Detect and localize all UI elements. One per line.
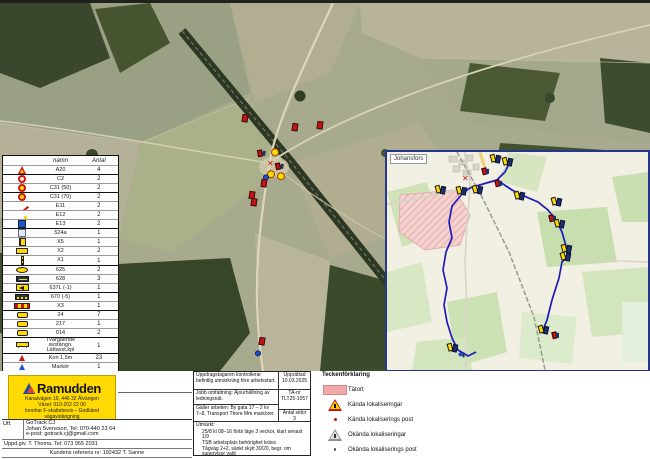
sign-name: Tvärgående avstängn. Lättavst.kpl [41,338,79,354]
sign-count: 7 [80,311,118,320]
legend-item-label: Tätort [348,387,364,393]
sign-count: 2 [80,184,118,193]
blue-sign-icon [18,220,26,228]
sign-count: 1 [80,284,118,293]
legend-row: 6252 [3,266,118,275]
legend-row: X51 [3,238,118,247]
zig-sign-icon [15,294,29,300]
title-block: Ramudden Kanalvägen 10, 446 32 Älvängen … [0,371,650,459]
legend-item-known-post: Kända lokaliserings post [322,412,487,427]
legend-row: A204 [3,166,118,175]
plan-notes-section: Utmärkt: 25/8 kl 08–16 förbi läge 3 veck… [194,422,310,455]
flag-pair-marker-icon [448,343,457,351]
sign-blue-marker-icon [255,350,261,356]
sign-count: 1 [80,229,118,238]
sign-count: 1 [80,338,118,354]
legend-row: X31 [3,302,118,311]
x1bar-sign-icon [21,256,24,265]
sign-red-marker-icon [258,337,265,346]
inset-markers [387,152,648,370]
legend-row: 2171 [3,320,118,329]
sign-red-pair-marker-icon [258,150,267,157]
x3-sign-icon [14,303,30,309]
sign-red-marker-icon [291,123,298,132]
ysmall-sign-icon [17,312,28,318]
cross-red-marker-icon [267,160,275,168]
plan-note: Tågväg 2+2, sänkt skylt 30/20, begr. om … [202,447,308,456]
legend-row: Kon 1,5m23 [3,354,118,363]
sign-name: E11 [41,202,79,211]
sign-name: C2 [41,175,79,184]
ramudden-wordmark: Ramudden [37,381,101,396]
plan-notes-label: Utmärkt: [196,422,215,428]
legend-row: C31 (50)2 [3,184,118,193]
ta-plan-page: namn Antal A204C22C31 (50)2C31 (70)2E112… [0,0,650,459]
flag-pair-marker-icon [539,325,548,333]
divider-line [118,392,192,393]
symbol-legend: Teckenförklaring Tätort Kända lokaliseri… [322,372,487,457]
legend-row: C22 [3,175,118,184]
legend-item-known-locations: Kända lokaliseringar [322,397,487,412]
ramudden-triangle-icon [23,383,35,394]
sign-name: A20 [41,166,79,175]
contractor-role-label: Utf. [2,420,24,439]
plan-note: TSB arbetsplats behörighet krävs [202,441,308,446]
trestle-sign-icon [16,342,29,347]
page-count-cell: Antal sidor 3 [278,410,310,422]
flag-pair-marker-icon [457,186,466,194]
sign-red-pair-marker-icon [276,163,285,170]
flag-pair-marker-icon [436,185,445,193]
sign-name: 217 [41,320,79,329]
flag-pair-marker-icon [561,252,570,260]
flag-pair-marker-icon [515,191,524,199]
legend-header-count: Antal [80,156,118,166]
legend-row: 637L (-1)1 [3,284,118,293]
legend-row: E112 [3,202,118,211]
flag-pair-marker-icon [473,185,482,193]
created-date-cell: Upprättad 10.03.2025 [278,372,310,390]
legend-row: 0142 [3,329,118,338]
inset-overview-map: Johansfors [385,150,650,372]
sign-count: 4 [80,166,118,175]
legend-row: Tvärgående avstängn. Lättavst.kpl1 [3,338,118,354]
sign-name: 625 [41,266,79,275]
legend-item-label: Kända lokaliseringar [348,402,402,408]
plan-info-row3: Gäller arbeten: By gata 17 – 2 kv 7–8, T… [194,405,278,422]
sign-count: 2 [80,193,118,202]
legend-item-unknown-locations: Okända lokaliseringar [322,427,487,442]
circ-sign-icon [18,175,26,183]
sign-count: 23 [80,354,118,363]
sign-count: 1 [80,320,118,329]
contractor-table: Utf. GoTrack CJ Johan Svensson, Tel: 070… [2,419,192,459]
cone-sign-icon [19,355,25,361]
legend-rows: A204C22C31 (50)2C31 (70)2E112E122E132524… [3,166,118,381]
plan-info-block: Uppdragstagaren kontrollerar befintlig u… [193,371,311,456]
pale-sign-icon [18,229,26,237]
legend-row: E122 [3,211,118,220]
sign-red-marker-icon [260,179,267,188]
sign-name: 524a [41,229,79,238]
x2-sign-icon [16,248,28,254]
sign-name: C31 (50) [41,184,79,193]
sign-yellow-marker-icon [271,148,279,156]
sign-name: 670 (-5) [41,293,79,302]
sign-count: 2 [80,211,118,220]
urban-area-swatch-icon [323,385,347,395]
sign-red-marker-icon [250,198,257,207]
legend-header-icon [3,156,41,166]
flag-pair-marker-icon [555,219,564,227]
legend-row: X11 [3,256,118,266]
ysmall-sign-icon [17,330,28,336]
legend-item-label: Okända lokaliseringar [348,432,406,438]
flag-pair-marker-icon [503,157,512,165]
ramudden-logo-box: Ramudden Kanalvägen 10, 446 32 Älvängen … [8,375,116,420]
ta-number-value: TLT25-1057 [281,397,308,403]
flag-red-marker-icon [552,332,560,339]
flag-pair-marker-icon [552,197,561,205]
sign-count: 2 [80,247,118,256]
sign-count: 1 [80,293,118,302]
sign-count: 2 [80,329,118,338]
sign-name: 24 [41,311,79,320]
sign-count: 2 [80,202,118,211]
sign-name: E13 [41,220,79,229]
flag-red-marker-icon [482,168,490,175]
legend-header-row: namn Antal [3,156,118,166]
sign-yellow-marker-icon [277,172,285,180]
ta-number-cell: TA-nr TLT25-1057 [278,390,310,410]
client-contact: Uppd.giv. T. Thoma, Tel: 073 955 2031 [2,440,192,449]
sign-red-marker-icon [241,114,248,123]
legend-row: 524a1 [3,229,118,238]
plan-info-row2: Jobb omfattning: Ajourhållning av lednin… [194,390,278,405]
sign-name: X3 [41,302,79,311]
symbol-legend-title: Teckenförklaring [322,372,487,378]
flag-pair-marker-icon [491,154,500,162]
contractor-email: e-post: gotrack.cj@gmail.com [26,432,190,438]
sign-count: 2 [80,175,118,184]
628-sign-icon [16,276,29,282]
sign-count: 3 [80,275,118,284]
legend-row: 247 [3,311,118,320]
sign-name: 014 [41,329,79,338]
sign-name: 637L (-1) [41,284,79,293]
cross-red-marker-icon [462,175,470,183]
sign-name: Kon 1,5m [41,354,79,363]
tri-sign-icon [18,166,26,174]
page-count-value: 3 [281,417,308,423]
oval-sign-icon [16,267,28,273]
legend-item-urban: Tätort [322,382,487,397]
sign-count: 1 [80,256,118,266]
legend-row: 6283 [3,275,118,284]
sign-name: X5 [41,238,79,247]
legend-item-label: Kända lokaliserings post [348,417,413,423]
customer-reference: Kundens referens nr: 192432 T. Sanne [2,449,192,458]
arrow-sign-icon [16,284,29,291]
legend-item-label: Okända lokaliserings post [348,447,417,453]
circ-yel-sign-icon [18,184,26,192]
legend-row: X22 [3,247,118,256]
created-date-value: 10.03.2025 [281,379,308,385]
flag-red-marker-icon [495,180,503,187]
sign-count: 2 [80,266,118,275]
sign-name: X2 [41,247,79,256]
plan-note: 25/8 kl 08–16 förbi läge 3 veckor, klart… [202,430,308,440]
legend-header-name: namn [41,156,79,166]
warning-triangle-icon [328,399,342,411]
sign-count: 2 [80,220,118,229]
legend-row: E132 [3,220,118,229]
red-dot-icon [334,418,337,421]
sign-name: X1 [41,256,79,266]
sign-count: 1 [80,302,118,311]
legend-row: 670 (-5)1 [3,293,118,302]
legend-item-unknown-post: Okända lokaliserings post [322,442,487,457]
plan-info-row1: Uppdragstagaren kontrollerar befintlig u… [194,372,278,390]
sign-name: C31 (70) [41,193,79,202]
sign-name: 628 [41,275,79,284]
plan-notes: 25/8 kl 08–16 förbi läge 3 veckor, klart… [202,430,308,456]
markerblue-sign-icon [19,364,25,370]
legend-row: C31 (70)2 [3,193,118,202]
sign-legend-table: namn Antal A204C22C31 (50)2C31 (70)2E112… [2,155,119,381]
sign-red-marker-icon [316,121,323,130]
flag-blue-marker-icon [459,352,466,358]
sign-name: E12 [41,211,79,220]
ysmall-sign-icon [17,321,28,327]
x5-sign-icon [19,238,26,246]
dark-dot-icon [334,448,337,451]
gray-warning-triangle-icon [328,429,342,441]
sign-count: 1 [80,238,118,247]
circ-yel-sign-icon [18,193,26,201]
